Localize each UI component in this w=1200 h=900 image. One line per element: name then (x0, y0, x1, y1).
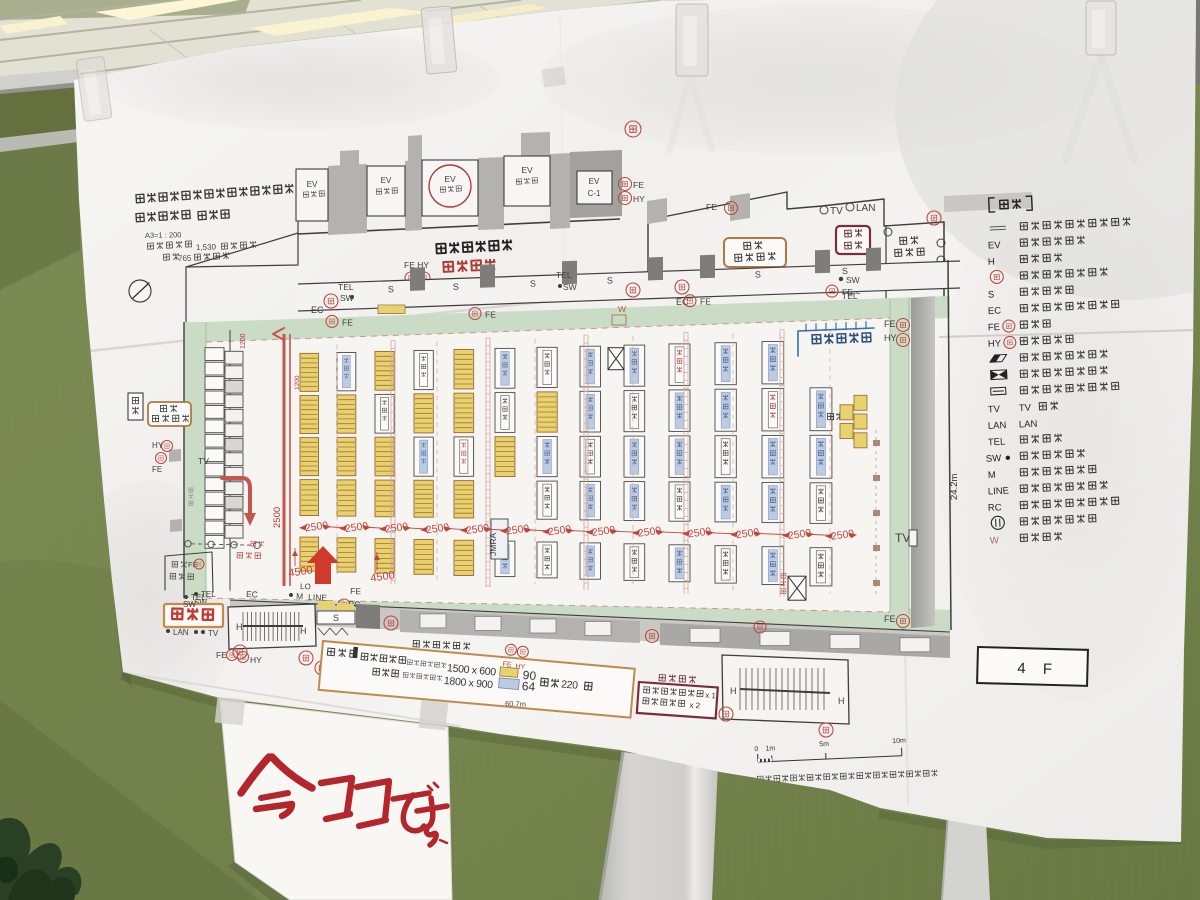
svg-text:F: F (1043, 661, 1053, 678)
svg-text:EV: EV (307, 180, 318, 189)
svg-text:FE: FE (884, 319, 896, 329)
svg-text:FE: FE (152, 465, 162, 474)
svg-text:S: S (607, 275, 613, 285)
svg-text:765: 765 (178, 254, 192, 263)
svg-text:EC: EC (988, 305, 1002, 317)
svg-text:TEL: TEL (988, 437, 1006, 449)
svg-text:FE: FE (485, 310, 496, 320)
svg-text:24.2m: 24.2m (949, 474, 960, 500)
svg-text:EC: EC (246, 589, 258, 599)
svg-text:SW: SW (846, 275, 860, 285)
svg-text:LINE: LINE (988, 486, 1010, 498)
svg-text:SW: SW (563, 282, 577, 292)
svg-text:FE: FE (633, 180, 644, 190)
svg-text:5m: 5m (819, 741, 829, 748)
svg-text:LINE: LINE (308, 592, 328, 603)
svg-text:H: H (236, 622, 243, 632)
svg-text:HY: HY (250, 655, 262, 665)
svg-text:220: 220 (561, 678, 579, 691)
svg-text:1m: 1m (765, 745, 775, 752)
svg-text:x 1: x 1 (705, 691, 717, 701)
svg-text:S: S (388, 284, 394, 294)
svg-text:TEL: TEL (556, 270, 572, 280)
svg-text:HY: HY (515, 663, 526, 671)
svg-text:64: 64 (521, 679, 536, 694)
svg-text:W: W (990, 535, 999, 546)
svg-text:S: S (453, 282, 459, 292)
svg-text:FE: FE (988, 322, 1001, 334)
svg-text:TV: TV (1019, 403, 1032, 415)
svg-text:TEL: TEL (338, 282, 354, 292)
svg-text:LO: LO (300, 582, 311, 591)
svg-text:RC: RC (988, 502, 1002, 514)
svg-text:TV: TV (830, 206, 843, 217)
svg-text:TV: TV (208, 629, 219, 638)
svg-text:HY: HY (884, 333, 897, 343)
svg-text:C-1: C-1 (588, 189, 601, 198)
svg-text:TV: TV (895, 531, 910, 545)
svg-text:FE: FE (350, 586, 362, 596)
svg-text:SW: SW (183, 600, 196, 609)
svg-text:x 2: x 2 (689, 701, 701, 711)
svg-text:LAN: LAN (173, 628, 189, 637)
svg-text:W: W (618, 304, 626, 314)
svg-text:1,530: 1,530 (196, 243, 217, 252)
svg-text:EV: EV (444, 174, 456, 184)
svg-text:A3=1 : 200: A3=1 : 200 (145, 230, 182, 240)
svg-text:EV: EV (589, 177, 600, 186)
svg-text:0: 0 (754, 746, 758, 753)
svg-text:FE: FE (502, 661, 512, 669)
svg-text:H: H (988, 257, 995, 268)
svg-text:LAN: LAN (856, 203, 875, 214)
svg-text:TV: TV (198, 456, 209, 466)
svg-text:FE: FE (216, 650, 227, 660)
svg-text:S: S (530, 278, 536, 288)
svg-text:FE: FE (842, 287, 853, 297)
svg-text:LAN: LAN (988, 420, 1007, 432)
svg-text:1200: 1200 (240, 333, 247, 349)
svg-text:M: M (988, 470, 996, 481)
svg-text:4: 4 (1017, 660, 1026, 677)
svg-text:JMRA: JMRA (488, 533, 498, 556)
svg-text:EV: EV (381, 176, 392, 185)
svg-text:M: M (296, 591, 303, 601)
svg-text:S: S (755, 269, 761, 279)
svg-text:S: S (988, 289, 995, 300)
svg-text:FE: FE (342, 317, 353, 327)
svg-text:SW: SW (986, 453, 1002, 465)
svg-text:FE: FE (706, 202, 717, 212)
svg-text:FE: FE (700, 297, 711, 307)
svg-text:10m: 10m (892, 738, 906, 746)
svg-text:HY: HY (988, 338, 1002, 350)
svg-text:H: H (300, 626, 307, 636)
svg-text:HY: HY (633, 194, 645, 204)
svg-text:H: H (838, 696, 845, 706)
svg-text:FE: FE (884, 614, 896, 624)
svg-text:EC: EC (311, 305, 324, 315)
svg-text:TV: TV (988, 404, 1001, 416)
svg-text:EV: EV (521, 165, 533, 175)
svg-text:LAN: LAN (1019, 419, 1038, 431)
svg-text:60.7m: 60.7m (505, 699, 526, 709)
svg-text:S: S (333, 613, 339, 623)
svg-text:2500: 2500 (272, 507, 283, 528)
svg-text:H: H (730, 686, 737, 696)
svg-text:SW: SW (340, 293, 354, 303)
svg-text:EV: EV (988, 240, 1002, 252)
